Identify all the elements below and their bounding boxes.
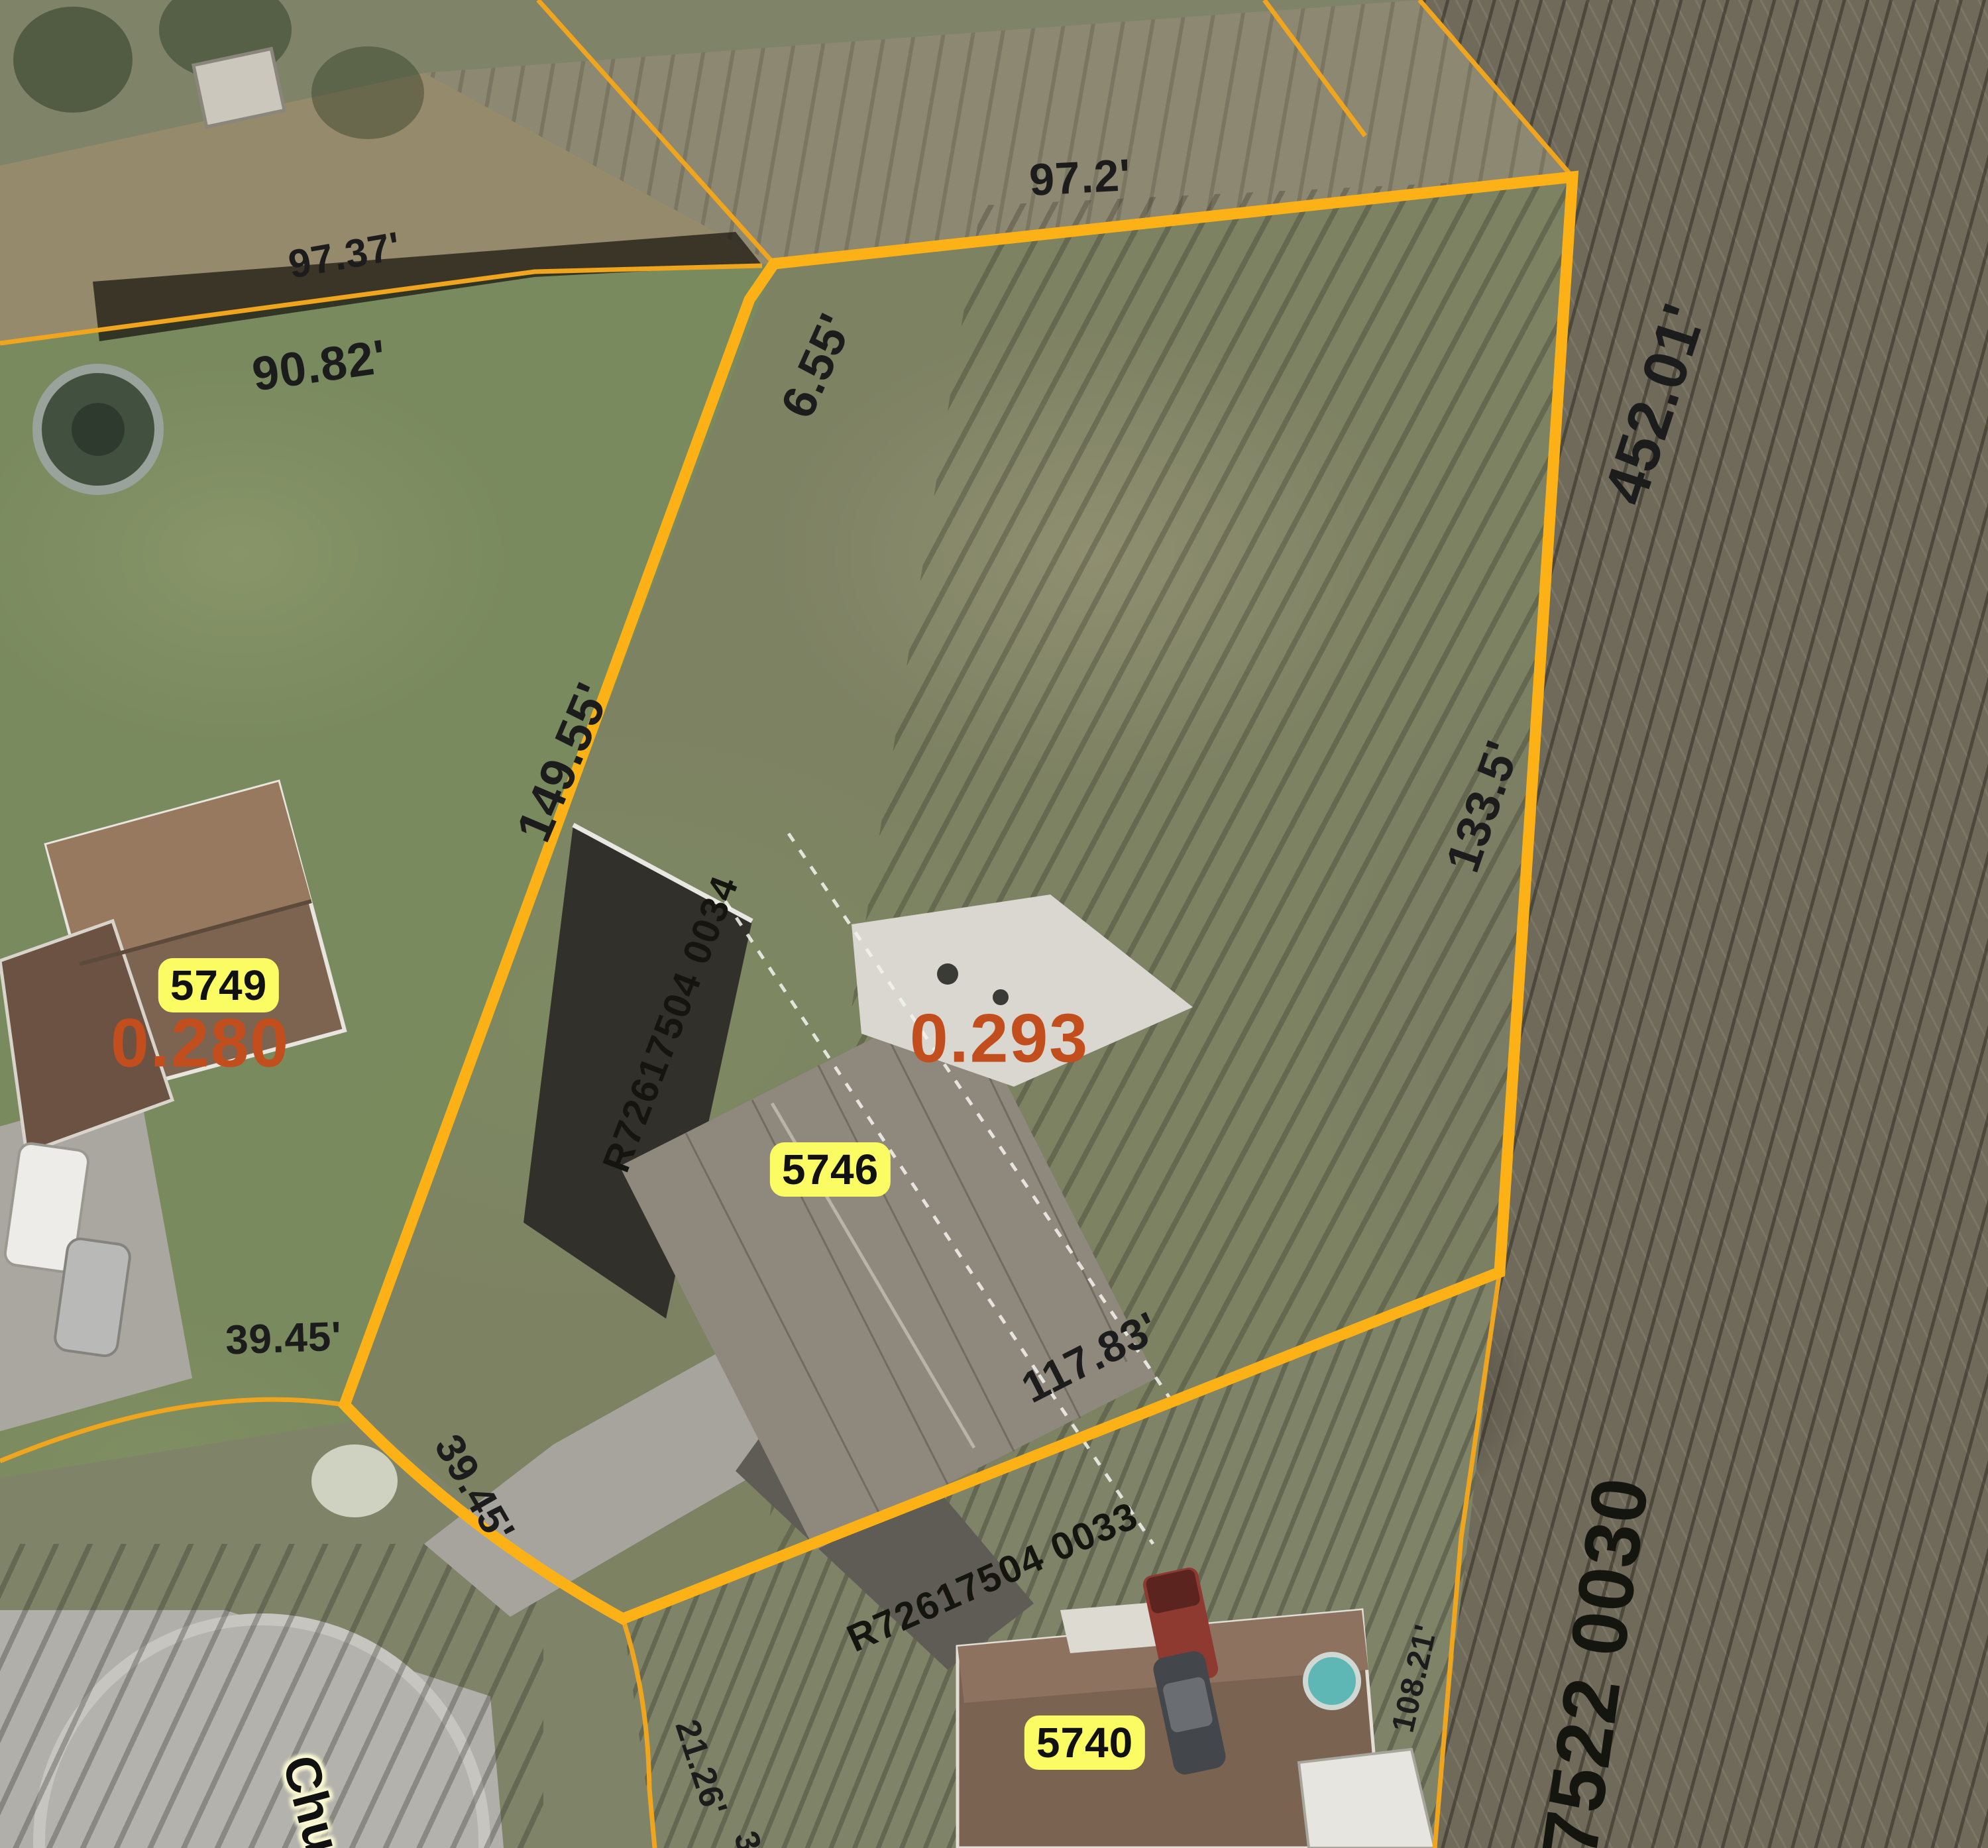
- rv-trailer: [1299, 1749, 1435, 1848]
- house-number-5746: 5746: [770, 1142, 891, 1197]
- acreage-selected-parcel: 0.293: [910, 1000, 1089, 1079]
- acreage-west-parcel: 0.280: [111, 1005, 290, 1083]
- dimension-label-frontage-a: 39.45': [225, 1313, 343, 1364]
- dimension-label-north: 97.2': [1028, 149, 1132, 206]
- pool: [1305, 1655, 1358, 1708]
- house-number-5749: 5749: [158, 958, 279, 1012]
- shed: [193, 49, 284, 127]
- aerial-map-canvas[interactable]: 97.2' 6.55' 149.55' 133.5' 117.83' 39.45…: [0, 0, 1988, 1848]
- trampoline: [37, 368, 159, 490]
- house-number-5740: 5740: [1024, 1715, 1145, 1770]
